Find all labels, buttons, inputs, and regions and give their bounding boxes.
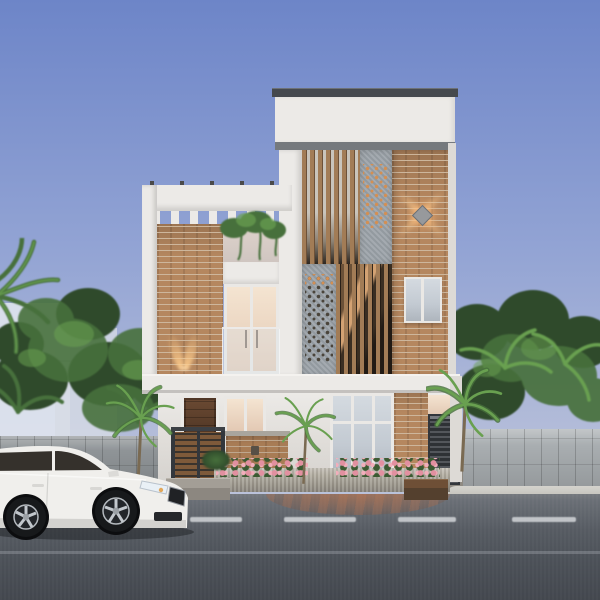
jali-perforations-upper <box>363 164 389 228</box>
balcony-glass-railing <box>222 327 280 377</box>
flower-bed-right <box>336 458 440 477</box>
tower-brick-wall <box>392 150 454 376</box>
car-intake <box>154 512 182 521</box>
car-indicator <box>159 488 163 492</box>
ground-window-left-frame <box>224 396 266 434</box>
car-door-handle-front <box>90 487 102 490</box>
car-rear-wheel <box>6 497 46 537</box>
car-white-sedan <box>0 440 198 550</box>
car-b-pillar <box>52 451 55 471</box>
scene-architectural-render <box>0 0 600 600</box>
palm-front-right <box>426 356 504 478</box>
palm-front-middle <box>274 392 338 486</box>
ground-window-left-mullion <box>244 399 247 431</box>
tower-mid-window-mullion <box>421 279 424 321</box>
palm-front-middle-trunk <box>303 427 306 483</box>
jali-perforations-mid <box>305 274 333 362</box>
terrace-plants <box>212 206 292 262</box>
tower-mid-window-frame <box>404 277 442 323</box>
pergola-left-column <box>142 185 157 376</box>
palm-front-right-trunk <box>462 406 465 472</box>
tower-right-return <box>448 143 456 376</box>
tower-left-pilaster <box>279 150 302 376</box>
accent-wall-fixture <box>251 446 259 455</box>
car-door-handle-rear <box>32 484 44 487</box>
entry-gate-rail <box>171 427 225 431</box>
side-gate-steps <box>404 479 448 500</box>
tower-parapet-shadow <box>275 142 455 150</box>
timber-slat-screen-upper <box>302 150 362 264</box>
floor-slab-band <box>142 374 460 394</box>
tower-coping <box>272 88 458 97</box>
shrub-left <box>202 450 230 470</box>
timber-slat-screen-stair <box>336 264 392 376</box>
jali-panel-upper <box>360 150 392 264</box>
terrace-band <box>223 262 279 284</box>
tower-parapet <box>275 97 455 143</box>
car-front-wheel <box>95 490 137 532</box>
uplight-source <box>177 364 191 372</box>
jali-perforations-mid-lit <box>305 274 333 286</box>
jali-panel-mid <box>302 264 336 376</box>
ground-glazing-transom <box>333 421 391 424</box>
